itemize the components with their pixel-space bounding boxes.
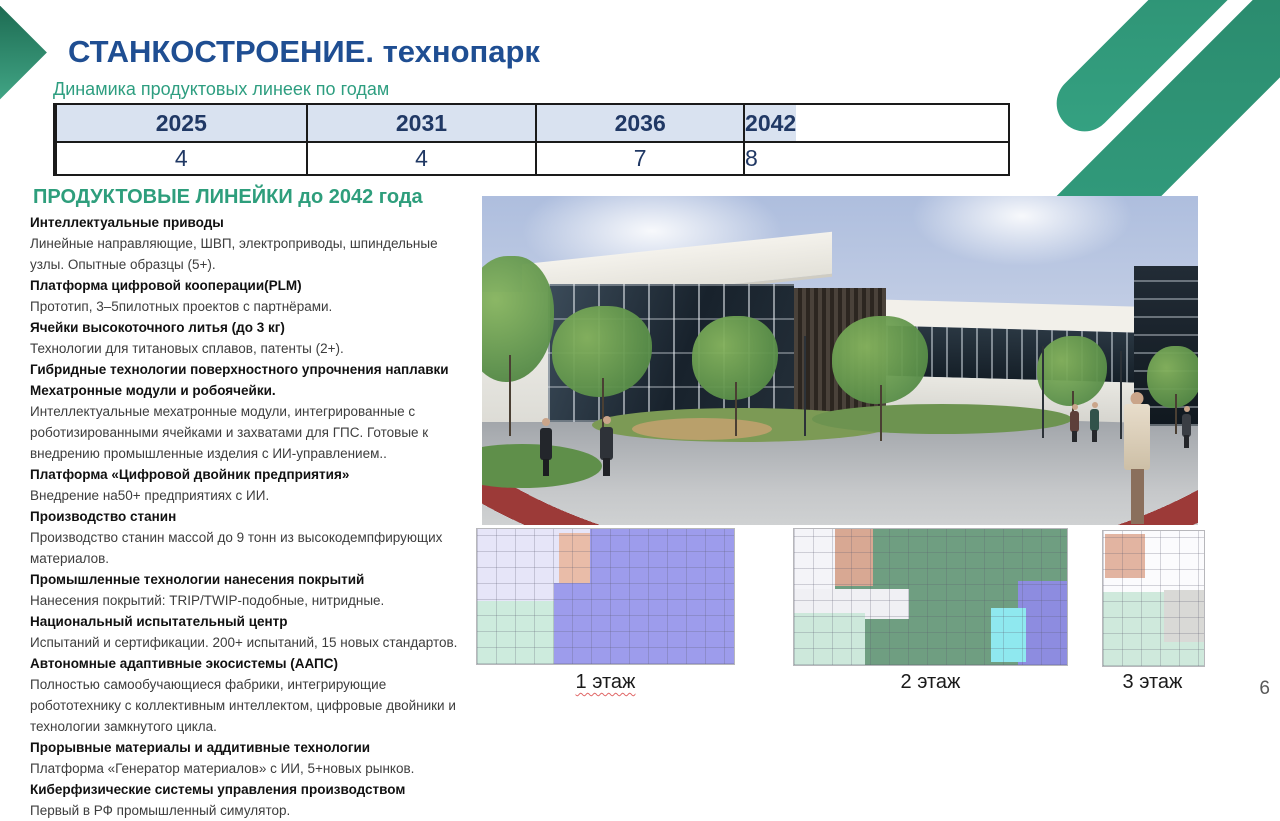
floor-plan-2-label: 2 этаж — [793, 671, 1068, 694]
product-line-item: Промышленные технологии нанесения покрыт… — [30, 569, 475, 590]
table-value-cell: 7 — [535, 143, 743, 174]
light-pole — [1042, 346, 1044, 438]
product-line-item: Прорывные материалы и аддитивные техноло… — [30, 737, 475, 758]
slide-subtitle: Динамика продуктовых линеек по годам — [53, 79, 389, 100]
product-lines-heading: ПРОДУКТОВЫЕ ЛИНЕЙКИ до 2042 года — [33, 186, 423, 209]
slide-title-accent: технопарк — [374, 34, 540, 69]
light-pole — [1120, 351, 1122, 439]
product-line-item: Платформа «Генератор материалов» с ИИ, 5… — [30, 758, 475, 779]
product-line-item: Гибридные технологии поверхностного упро… — [30, 359, 475, 380]
product-line-item: Испытаний и сертификации. 200+ испытаний… — [30, 632, 475, 653]
tree — [832, 316, 928, 441]
light-pole — [804, 336, 806, 436]
table-year-header: 2036 — [535, 105, 743, 141]
product-line-item: Мехатронные модули и робоячейки. — [30, 380, 475, 401]
product-line-item: Платформа «Цифровой двойник предприятия» — [30, 464, 475, 485]
table-value-cell: 4 — [55, 143, 306, 174]
plan-gridlines — [477, 529, 734, 664]
corner-diamond-decoration — [0, 5, 47, 100]
product-line-item: Автономные адаптивные экосистемы (ААПС) — [30, 653, 475, 674]
floor-plan-3-label: 3 этаж — [1075, 671, 1230, 694]
table-year-header: 2031 — [306, 105, 536, 141]
table-value-cell: 8 — [743, 143, 758, 174]
product-line-item: Производство станин массой до 9 тонн из … — [30, 527, 475, 569]
product-line-item: Первый в РФ промышленный симулятор. — [30, 800, 475, 821]
person-silhouette — [1182, 406, 1191, 448]
plan-gridlines — [1103, 531, 1204, 666]
tree — [482, 256, 554, 436]
table-year-header: 2042 — [743, 105, 796, 141]
table-header-row: 2025203120362042 — [55, 105, 1008, 141]
slide-title: СТАНКОСТРОЕНИЕ. технопарк — [68, 34, 540, 70]
floor-plan-2 — [793, 528, 1068, 666]
product-line-item: Национальный испытательный центр — [30, 611, 475, 632]
product-line-item: Технологии для титановых сплавов, патент… — [30, 338, 475, 359]
product-line-item: Ячейки высокоточного литья (до 3 кг) — [30, 317, 475, 338]
floor-plan-3 — [1102, 530, 1205, 667]
floor-plan-1-label: 1 этаж — [476, 671, 735, 694]
building-rendering-image — [482, 196, 1198, 525]
person-silhouette — [540, 418, 552, 476]
person-silhouette — [600, 416, 613, 476]
cloud-shape — [912, 196, 1132, 266]
table-value-cell: 4 — [306, 143, 536, 174]
product-line-item: Полностью самообучающиеся фабрики, интег… — [30, 674, 475, 737]
tree — [692, 316, 778, 436]
woman-walking-silhouette — [1124, 392, 1150, 524]
product-line-item: Интеллектуальные мехатронные модули, инт… — [30, 401, 475, 464]
person-silhouette — [1090, 402, 1099, 442]
product-line-item: Нанесения покрытий: TRIP/TWIP-подобные, … — [30, 590, 475, 611]
floor-plan-1 — [476, 528, 735, 665]
product-line-item: Платформа цифровой кооперации(PLM) — [30, 275, 475, 296]
product-line-item: Производство станин — [30, 506, 475, 527]
product-line-item: Интеллектуальные приводы — [30, 212, 475, 233]
product-lines-dynamics-table: 2025203120362042 4478 — [53, 103, 1010, 176]
page-number: 6 — [1230, 678, 1270, 700]
product-line-item: Внедрение на50+ предприятиях с ИИ. — [30, 485, 475, 506]
product-line-item: Линейные направляющие, ШВП, электроприво… — [30, 233, 475, 275]
table-year-header: 2025 — [55, 105, 306, 141]
product-line-item: Прототип, 3–5пилотных проектов с партнёр… — [30, 296, 475, 317]
plan-gridlines — [794, 529, 1067, 665]
person-silhouette — [1070, 404, 1079, 442]
table-values-row: 4478 — [55, 141, 1008, 174]
product-lines-list: Интеллектуальные приводыЛинейные направл… — [30, 212, 475, 821]
slide-title-main: СТАНКОСТРОЕНИЕ. — [68, 34, 374, 69]
product-line-item: Киберфизические системы управления произ… — [30, 779, 475, 800]
